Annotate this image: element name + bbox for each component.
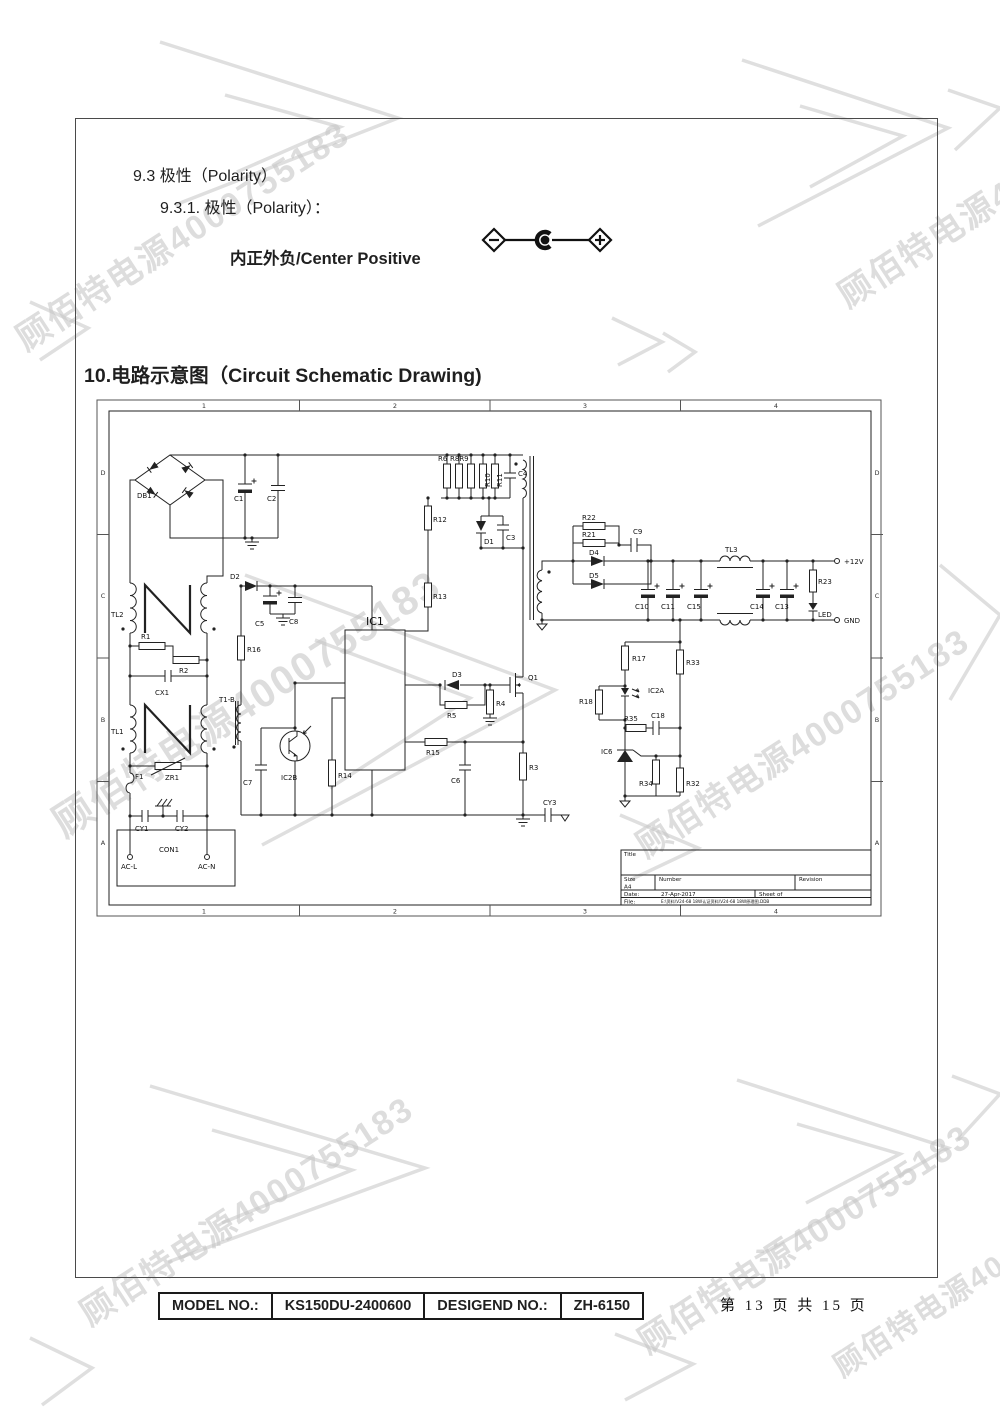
titleblock-date-label: Date: bbox=[624, 892, 639, 898]
junction-dots bbox=[121, 453, 814, 817]
component-label-R1: R1 bbox=[141, 633, 150, 641]
grid-ref: 3 bbox=[583, 402, 587, 410]
grid-ref: C bbox=[101, 592, 106, 600]
center-positive-polarity-icon bbox=[479, 224, 615, 257]
document-page: 顾佰特电源4000755183 顾佰特电源4000755183 顾佰特电源400… bbox=[0, 0, 1000, 1414]
component-label-R13: R13 bbox=[433, 593, 447, 601]
titleblock-file-label: File: bbox=[624, 900, 635, 906]
circuit-schematic: Title Size A4 Number Revision Date: 27-A… bbox=[95, 398, 885, 918]
section-9-3-1-heading: 9.3.1. 极性（Polarity）： bbox=[160, 194, 330, 218]
footer-table: MODEL NO.: KS150DU-2400600 DESIGEND NO.:… bbox=[158, 1292, 644, 1320]
section-9-3-heading: 9.3 极性（Polarity） bbox=[133, 162, 277, 186]
component-label-R35: R35 bbox=[624, 715, 638, 723]
component-label-IC6: IC6 bbox=[601, 748, 613, 756]
component-label-C18: C18 bbox=[651, 712, 665, 720]
center-dot bbox=[541, 236, 550, 245]
component-label-C15: C15 bbox=[687, 603, 701, 611]
grid-ref: 1 bbox=[202, 402, 206, 410]
component-label-R14: R14 bbox=[338, 772, 352, 780]
component-label-CY3: CY3 bbox=[543, 799, 557, 807]
component-label-R2: R2 bbox=[179, 667, 188, 675]
component-label-R15: R15 bbox=[426, 749, 440, 757]
component-label-IC2A: IC2A bbox=[648, 687, 664, 695]
component-label-D4: D4 bbox=[589, 549, 599, 557]
ground-symbols bbox=[155, 542, 630, 826]
grid-ref: 3 bbox=[583, 908, 587, 916]
component-label-C14: C14 bbox=[750, 603, 764, 611]
component-label-R16: R16 bbox=[247, 646, 261, 654]
con1-box bbox=[117, 830, 235, 886]
component-label-C9: C9 bbox=[633, 528, 642, 536]
component-label-CX1: CX1 bbox=[155, 689, 169, 697]
grid-ref: 1 bbox=[202, 908, 206, 916]
grid-ref: D bbox=[874, 469, 879, 477]
section-10-heading: 10.电路示意图（Circuit Schematic Drawing) bbox=[84, 359, 482, 388]
grid-ref: A bbox=[875, 839, 880, 847]
grid-ref: D bbox=[100, 469, 105, 477]
ic1-box bbox=[345, 630, 405, 770]
component-label-GND: GND bbox=[844, 617, 860, 625]
design-no-value: ZH-6150 bbox=[560, 1292, 644, 1320]
component-label-IC1: IC1 bbox=[366, 615, 384, 628]
component-label-R22: R22 bbox=[582, 514, 596, 522]
titleblock-size-label: Size bbox=[624, 877, 636, 883]
component-label-C10: C10 bbox=[635, 603, 649, 611]
component-label-R11: R11 bbox=[496, 473, 504, 487]
component-label-C11: C11 bbox=[661, 603, 675, 611]
component-label-C8: C8 bbox=[289, 618, 298, 626]
component-label-CON1: CON1 bbox=[159, 846, 179, 854]
grid-ref: 2 bbox=[393, 908, 397, 916]
polarity-label: 内正外负/Center Positive bbox=[230, 245, 421, 269]
component-label-C3: C3 bbox=[506, 534, 515, 542]
component-label-LED: LED bbox=[818, 611, 832, 619]
grid-ref: B bbox=[101, 716, 105, 724]
component-label-R17: R17 bbox=[632, 655, 646, 663]
component-label-R12: R12 bbox=[433, 516, 447, 524]
output-gnd-terminal bbox=[835, 618, 840, 623]
title-block: Title Size A4 Number Revision Date: 27-A… bbox=[621, 850, 871, 906]
titleblock-size-value: A4 bbox=[624, 885, 632, 891]
component-label-C4: C4 bbox=[518, 470, 528, 478]
page-number: 第 13 页 共 15 页 bbox=[720, 1294, 868, 1315]
component-label-C6: C6 bbox=[451, 777, 461, 785]
titleblock-sheet-label: Sheet of bbox=[759, 892, 783, 898]
component-label-R5: R5 bbox=[447, 712, 456, 720]
shunt-regulator-ic6 bbox=[617, 750, 633, 762]
component-label-R4: R4 bbox=[496, 700, 506, 708]
component-label-D5: D5 bbox=[589, 572, 599, 580]
model-no-value: KS150DU-2400600 bbox=[271, 1292, 426, 1320]
titleblock-title: Title bbox=[623, 852, 637, 858]
opto-transistor-ic2b bbox=[280, 726, 311, 761]
component-label-D2: D2 bbox=[230, 573, 240, 581]
grid-ref: B bbox=[875, 716, 879, 724]
component-label-T1-B: T1-B bbox=[218, 696, 235, 704]
component-label-C2: C2 bbox=[267, 495, 276, 503]
output-12v-terminal bbox=[835, 559, 840, 564]
component-label-R21: R21 bbox=[582, 531, 596, 539]
component-label-AC-L: AC-L bbox=[121, 863, 137, 871]
grid-ref: 2 bbox=[393, 402, 397, 410]
titleblock-date-value: 27-Apr-2017 bbox=[661, 892, 696, 898]
component-label-D1: D1 bbox=[484, 538, 494, 546]
component-label-R6: R6 bbox=[438, 455, 448, 463]
component-label-R18: R18 bbox=[579, 698, 593, 706]
component-label-ZR1: ZR1 bbox=[165, 774, 179, 782]
component-label-R3: R3 bbox=[529, 764, 538, 772]
component-label-F1: F1 bbox=[135, 773, 143, 781]
component-label-CY2: CY2 bbox=[175, 825, 189, 833]
component-label-IC2B: IC2B bbox=[281, 774, 297, 782]
grid-ref: 4 bbox=[774, 908, 778, 916]
component-label-R33: R33 bbox=[686, 659, 700, 667]
component-label-D3: D3 bbox=[452, 671, 462, 679]
component-label-AC-N: AC-N bbox=[198, 863, 215, 871]
component-label-+12V: +12V bbox=[844, 558, 864, 566]
component-label-R8R9: R8R9 bbox=[450, 455, 469, 463]
titleblock-file-value: E:\资料\V24-68 18W认证资料\V24-68 18W原理图.DDB bbox=[661, 898, 769, 905]
titleblock-number-label: Number bbox=[659, 877, 682, 883]
component-label-C7: C7 bbox=[243, 779, 252, 787]
titleblock-revision-label: Revision bbox=[799, 877, 823, 883]
component-label-C5: C5 bbox=[255, 620, 264, 628]
component-label-C13: C13 bbox=[775, 603, 789, 611]
component-label-TL3: TL3 bbox=[724, 546, 738, 554]
design-no-label: DESIGEND NO.: bbox=[423, 1292, 561, 1320]
component-label-DB1: DB1 bbox=[137, 492, 152, 500]
model-no-label: MODEL NO.: bbox=[158, 1292, 273, 1320]
grid-ref: A bbox=[101, 839, 106, 847]
component-label-R23: R23 bbox=[818, 578, 832, 586]
component-label-TL2: TL2 bbox=[110, 611, 124, 619]
grid-ref: 4 bbox=[774, 402, 778, 410]
component-label-R34: R34 bbox=[639, 780, 653, 788]
wires bbox=[130, 455, 835, 854]
component-label-C1: C1 bbox=[234, 495, 243, 503]
component-label-TL1: TL1 bbox=[110, 728, 124, 736]
component-label-R10: R10 bbox=[484, 473, 492, 487]
component-label-CY1: CY1 bbox=[135, 825, 149, 833]
component-label-R32: R32 bbox=[686, 780, 700, 788]
misc-components bbox=[117, 559, 840, 887]
grid-ref: C bbox=[875, 592, 880, 600]
component-label-Q1: Q1 bbox=[528, 674, 538, 682]
